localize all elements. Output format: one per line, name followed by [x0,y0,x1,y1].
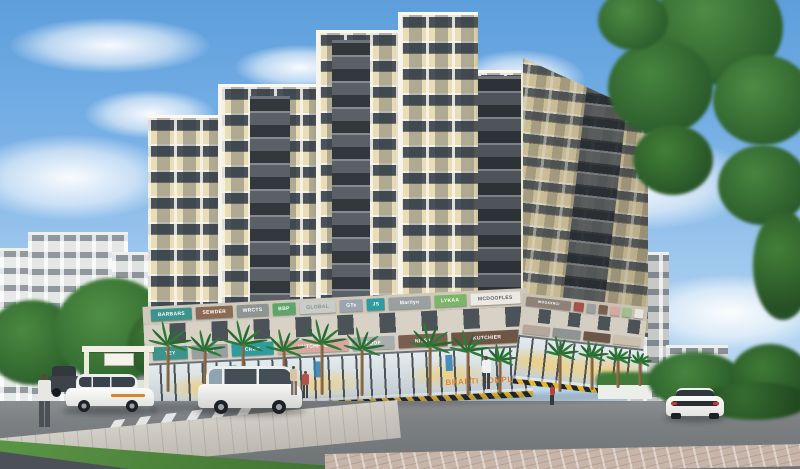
shop-sign: JS [367,298,386,311]
palm-tree [578,350,606,390]
shop-sign: MCDOOFLES [470,291,521,305]
palm-trunk [466,351,469,396]
palm-trunk [166,344,169,392]
balcony-stack [332,40,370,311]
foliage [753,210,800,320]
person-torso [290,369,298,381]
wheel [78,400,90,412]
shop-sign: GLOBAL [299,300,336,314]
balcony-stack [478,76,522,313]
main-building-facade [400,12,478,311]
facade-pier [316,30,320,308]
wheel [52,388,61,397]
person-torso [550,387,555,395]
palm-frond [168,343,188,351]
pedestrian-man-near-entrance [481,356,492,391]
white-mpv [66,374,154,414]
palm-frond [362,349,381,357]
person-torso [482,360,491,373]
pedestrian-man-walking-foreground [36,374,53,430]
tail-light [713,402,719,405]
palm-trunk [558,354,561,392]
palm-trunk [616,359,619,388]
palm-tree [343,342,381,396]
wheel [214,400,228,414]
palm-trunk [638,362,641,386]
shop-sign [523,324,551,336]
palm-frond [560,353,576,360]
silver-minivan [198,366,302,416]
person-legs [39,401,49,427]
shop-sign: LYKAA [434,294,467,308]
main-building-facade [148,115,222,311]
person-legs [303,385,308,398]
palm-frond [205,349,223,357]
shop-sign [613,334,641,346]
foliage [713,55,800,145]
minivan-windows [209,369,291,384]
palm-tree [630,358,650,386]
foreground-tree [598,0,800,330]
wheel [272,400,286,414]
palm-frond [284,349,303,357]
wheel [709,413,719,419]
vehicle-shadow [62,406,158,415]
person-legs [550,395,554,405]
palm-frond [322,342,343,351]
gate-name-board [104,353,134,366]
shop-sign: SEWDER [196,305,233,319]
palm-trunk [360,350,363,396]
mpv-windows [79,377,135,387]
palm-frond [430,345,451,354]
coupe-tail-band [672,401,718,406]
white-coupe [666,388,724,420]
person-legs [291,381,297,395]
wheel [671,413,681,419]
shop-sign: Marilyn [389,296,431,310]
balcony-stack [250,96,290,311]
palm-frond [243,343,264,352]
pedestrian-companion-near-shops [301,371,309,399]
shop-sign [586,303,596,313]
palm-trunk [321,343,324,395]
foliage [608,40,713,135]
wheel [126,400,138,412]
shop-sign: BARBARS [151,307,193,321]
facade-pier [398,12,402,308]
pedestrian-woman-near-shops [289,366,298,397]
person-torso [38,380,52,401]
person-torso [302,374,309,385]
palm-tree [148,336,187,392]
palm-trunk [591,356,594,390]
shop-sign [574,301,584,311]
facade-pier [218,84,222,308]
tail-light [671,402,677,405]
pedestrian-child-in-red [549,385,555,406]
palm-trunk [428,346,431,396]
architectural-render: BARBARSSEWDERWRCTSBBPGLOBALGTsJSMarilynL… [0,0,800,469]
foliage [633,125,713,195]
shop-sign: GTs [340,299,363,312]
palm-tree [606,354,630,388]
shop-sign: WRCTS [236,304,269,318]
cloud [10,18,210,73]
person-legs [483,373,490,389]
palm-tree [410,338,451,396]
palm-trunk [499,360,502,394]
mpv-accent-stripe [111,394,145,397]
shop-sign: BBP [272,302,295,315]
